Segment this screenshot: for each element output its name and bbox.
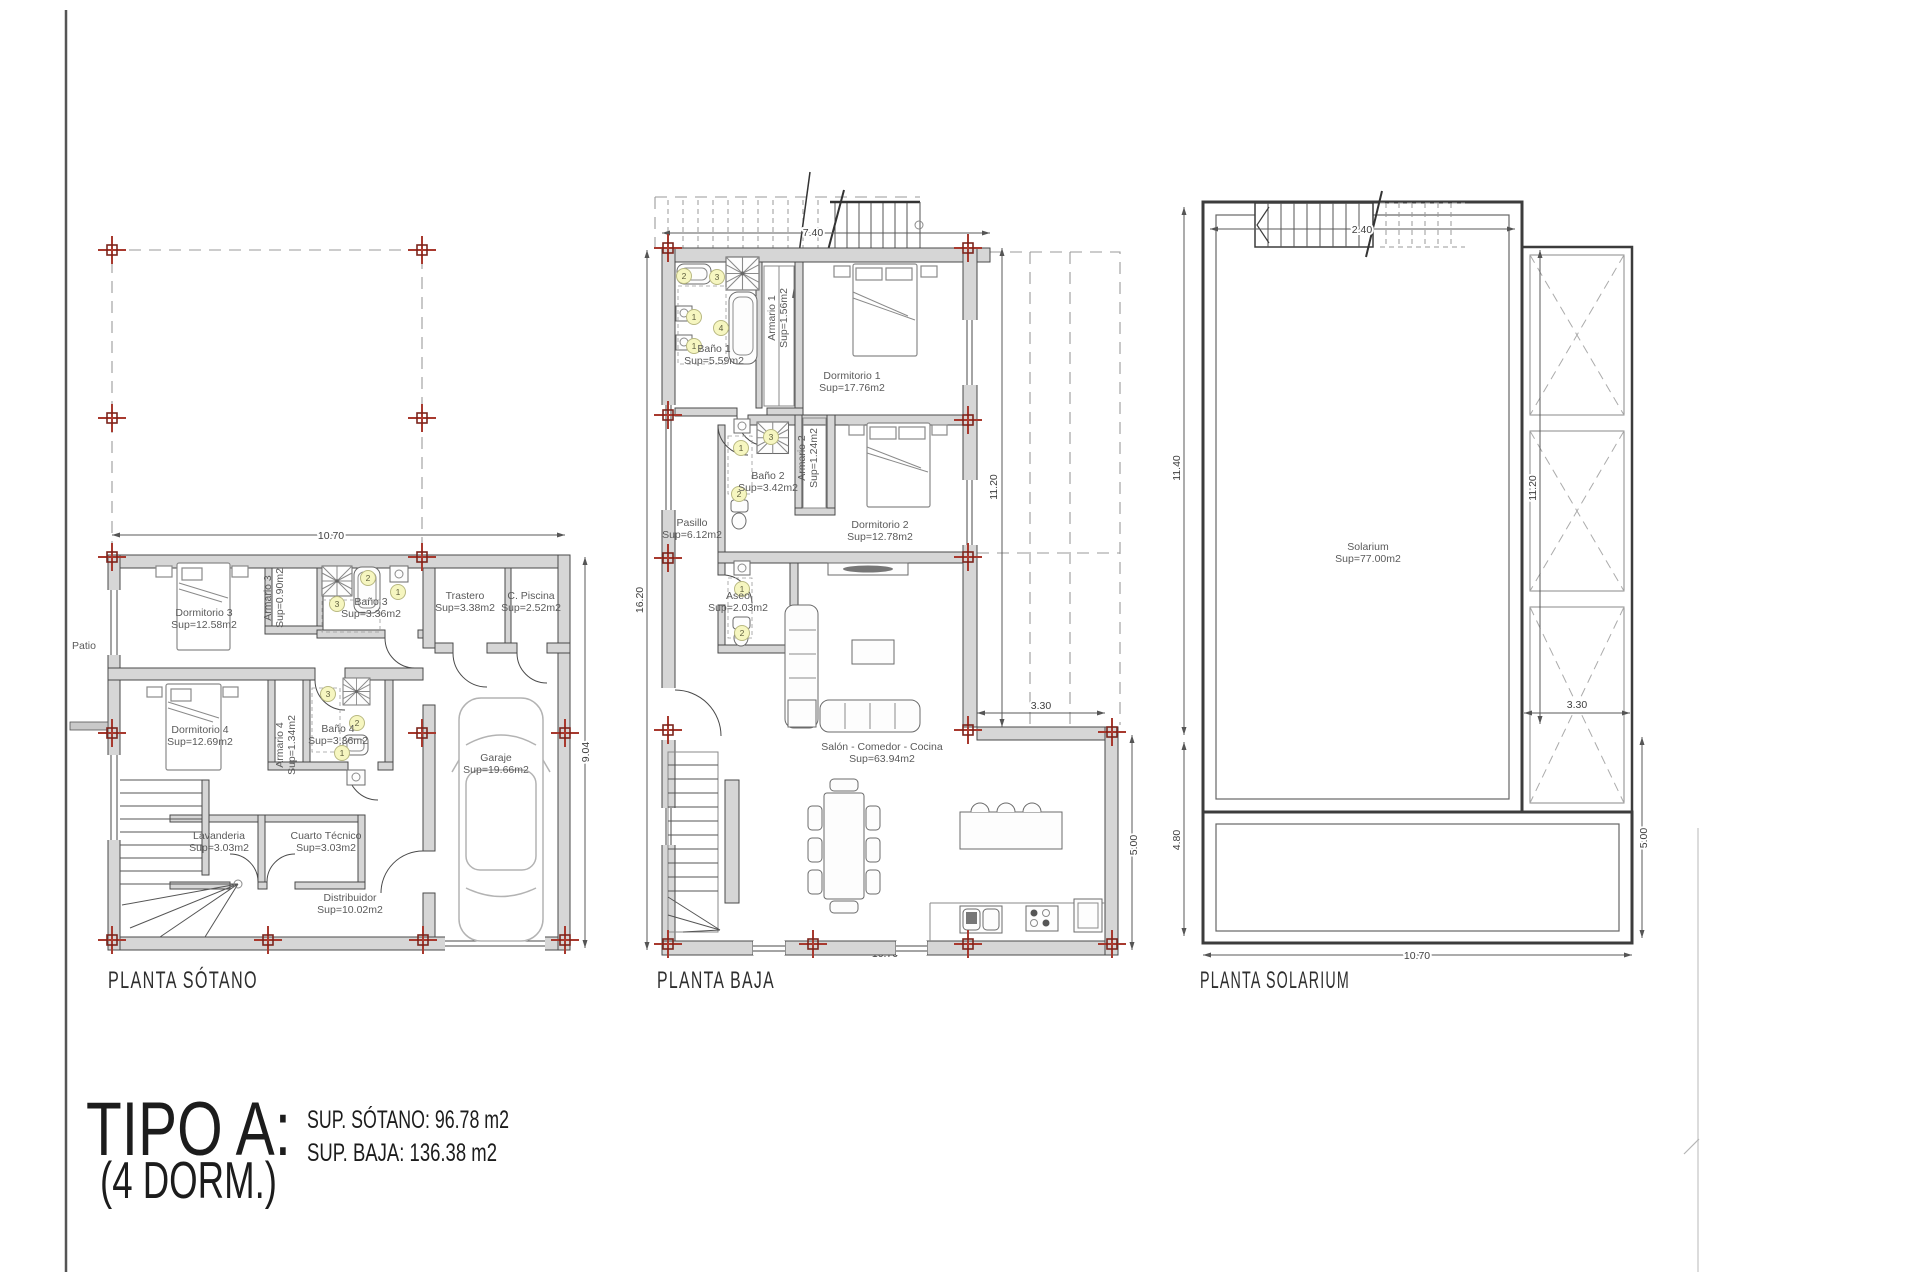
sink-icon — [347, 770, 365, 785]
plan-baja: 7.40 16.20 11.20 3.30 5.00 10.70 — [634, 172, 1140, 994]
svg-text:1: 1 — [692, 312, 697, 322]
solarium-outer-wall — [1203, 202, 1522, 812]
sink-icon — [734, 561, 750, 575]
room-label: Dormitorio 4 — [171, 724, 228, 736]
svg-text:3: 3 — [769, 432, 774, 442]
shower-icon — [322, 566, 352, 596]
room-area: Sup=12.78m2 — [847, 531, 913, 543]
car-icon — [452, 698, 550, 941]
room-label: Baño 2 — [751, 470, 784, 482]
room-label: Dormitorio 2 — [851, 519, 908, 531]
plan-sheet: 10.70 9.04 — [0, 0, 1920, 1280]
room-label: Trastero — [446, 590, 485, 602]
column-marker-icon — [654, 544, 682, 572]
room-label: Salón - Comedor - Cocina — [821, 741, 943, 753]
svg-text:11.20: 11.20 — [988, 474, 1000, 500]
column-marker-icon — [1098, 718, 1126, 746]
shower-icon — [726, 257, 759, 290]
sink-icon — [734, 419, 750, 433]
room-label: Distribuidor — [323, 892, 377, 904]
room-label: Dormitorio 1 — [823, 370, 880, 382]
key-note: 3 — [710, 270, 725, 285]
key-note: 3 — [764, 430, 779, 445]
type-subtitle: (4 DORM.) — [100, 1152, 277, 1210]
shower-icon — [343, 678, 370, 705]
room-label: Armario 2 — [796, 435, 808, 481]
floorplan-drawing: 10.70 9.04 — [0, 0, 1920, 1280]
column-marker-icon — [408, 236, 436, 264]
room-label: Lavanderia — [193, 830, 245, 842]
svg-text:2: 2 — [366, 573, 371, 583]
room-label: C. Piscina — [507, 590, 554, 602]
bed-icon — [849, 423, 947, 507]
svg-text:2: 2 — [355, 718, 360, 728]
sotano-dim-height: 9.04 — [580, 557, 592, 948]
key-note: 2 — [677, 269, 692, 284]
room-label: Cuarto Técnico — [290, 830, 361, 842]
room-area: Sup=6.12m2 — [662, 529, 722, 541]
surface-sotano: SUP. SÓTANO: 96.78 m2 — [307, 1105, 509, 1134]
column-marker-icon — [551, 719, 579, 747]
svg-text:11.40: 11.40 — [1171, 455, 1183, 481]
dim-label: 10.70 — [318, 530, 344, 542]
room-area: Sup=1.24m2 — [808, 428, 820, 488]
key-note: 1 — [335, 746, 350, 761]
svg-text:5.00: 5.00 — [1638, 828, 1650, 849]
baja-stairs-lower-icon — [668, 752, 739, 932]
plan-title-sotano: PLANTA SÓTANO — [108, 967, 258, 994]
solarium-terrace-outer — [1203, 812, 1632, 943]
svg-text:1: 1 — [692, 341, 697, 351]
room-label: Dormitorio 3 — [175, 607, 232, 619]
plan-sotano: 10.70 9.04 — [70, 236, 592, 994]
room-label: Aseo — [726, 590, 750, 602]
svg-text:1: 1 — [340, 748, 345, 758]
coffee-table-icon — [852, 640, 894, 664]
svg-text:11.20: 11.20 — [1527, 475, 1539, 501]
tv-console-icon — [828, 563, 908, 575]
svg-text:3.30: 3.30 — [1031, 700, 1052, 712]
svg-text:2: 2 — [682, 271, 687, 281]
key-note: 1 — [734, 441, 749, 456]
sotano-stairs-icon — [120, 780, 242, 937]
svg-text:4.80: 4.80 — [1171, 830, 1183, 851]
column-marker-icon — [654, 401, 682, 429]
patio-label: Patio — [72, 640, 96, 652]
sotano-projection-dashed — [112, 250, 422, 553]
room-label: Garaje — [480, 752, 512, 764]
svg-text:16.20: 16.20 — [634, 587, 646, 613]
key-note: 1 — [391, 585, 406, 600]
column-marker-icon — [954, 406, 982, 434]
room-area: Sup=3.03m2 — [189, 842, 249, 854]
room-label: Baño 1 — [697, 343, 730, 355]
room-area: Sup=2.03m2 — [708, 602, 768, 614]
svg-text:10.70: 10.70 — [1404, 950, 1430, 962]
plan-solarium: 2.40 11.40 4.80 11.20 3.30 5.00 10.70 So… — [1171, 191, 1650, 994]
svg-text:3: 3 — [326, 689, 331, 699]
room-area: Sup=3.36m2 — [308, 735, 368, 747]
key-note: 2 — [361, 571, 376, 586]
room-area: Sup=3.42m2 — [738, 482, 798, 494]
svg-text:2.40: 2.40 — [1352, 224, 1373, 236]
column-marker-icon — [408, 404, 436, 432]
svg-text:3: 3 — [715, 272, 720, 282]
room-label: Solarium — [1347, 541, 1389, 553]
room-label: Pasillo — [677, 517, 708, 529]
room-area: Sup=12.58m2 — [171, 619, 237, 631]
stove-icon — [1026, 906, 1058, 931]
room-area: Sup=2.52m2 — [501, 602, 561, 614]
solarium-dims: 2.40 11.40 4.80 11.20 3.30 5.00 10.70 — [1171, 207, 1650, 962]
svg-text:5.00: 5.00 — [1128, 835, 1140, 856]
room-area: Sup=17.76m2 — [819, 382, 885, 394]
dim-label: 9.04 — [580, 742, 592, 763]
key-note: 4 — [714, 321, 729, 336]
svg-text:2: 2 — [740, 628, 745, 638]
solarium-terrace-inner — [1216, 824, 1619, 931]
room-area: Sup=63.94m2 — [849, 753, 915, 765]
room-area: Sup=12.69m2 — [167, 736, 233, 748]
room-area: Sup=0.90m2 — [274, 568, 286, 628]
svg-text:1: 1 — [396, 587, 401, 597]
room-area: Sup=19.66m2 — [463, 764, 529, 776]
column-marker-icon — [98, 236, 126, 264]
kitchen-counter-icon — [930, 899, 1105, 941]
key-note: 2 — [735, 626, 750, 641]
solarium-pergola-strip — [1522, 247, 1632, 812]
solarium-inner-wall — [1216, 215, 1509, 799]
plan-title-solarium: PLANTA SOLARIUM — [1200, 967, 1350, 994]
room-label: Armario 4 — [274, 722, 286, 768]
key-note: 1 — [687, 310, 702, 325]
sotano-dim-width: 10.70 — [112, 530, 565, 542]
surface-baja: SU​P. BAJA: 136.38 m2 — [307, 1139, 497, 1167]
column-marker-icon — [98, 404, 126, 432]
kitchen-island-icon — [960, 803, 1062, 849]
sofa-icon — [785, 605, 920, 732]
bed-icon — [834, 264, 937, 356]
column-marker-icon — [954, 543, 982, 571]
room-area: Sup=1.56m2 — [778, 288, 790, 348]
sink-icon — [390, 566, 408, 582]
dining-table-icon — [808, 779, 880, 913]
room-area: Sup=77.00m2 — [1335, 553, 1401, 565]
key-note: 3 — [321, 687, 336, 702]
room-area: Sup=3.36m2 — [341, 608, 401, 620]
plan-title-baja: PLANTA BAJA — [657, 967, 775, 994]
room-label: Armario 3 — [262, 575, 274, 621]
room-label: Baño 3 — [354, 596, 387, 608]
sheet-corner-mark — [1684, 1139, 1699, 1154]
room-area: Sup=3.38m2 — [435, 602, 495, 614]
svg-text:3.30: 3.30 — [1567, 699, 1588, 711]
svg-text:7.40: 7.40 — [803, 227, 824, 239]
column-marker-icon — [654, 716, 682, 744]
svg-text:1: 1 — [739, 443, 744, 453]
room-area: Sup=10.02m2 — [317, 904, 383, 916]
room-area: Sup=5.59m2 — [684, 355, 744, 367]
svg-text:3: 3 — [335, 599, 340, 609]
room-label: Armario 1 — [766, 295, 778, 341]
room-label: Baño 4 — [321, 723, 354, 735]
svg-text:4: 4 — [719, 323, 724, 333]
room-area: Sup=3.03m2 — [296, 842, 356, 854]
room-area: Sup=1.34m2 — [286, 715, 298, 775]
title-block: TIPO A: (4 DORM.) SUP. SÓTANO: 96.78 m2 … — [86, 1087, 509, 1210]
